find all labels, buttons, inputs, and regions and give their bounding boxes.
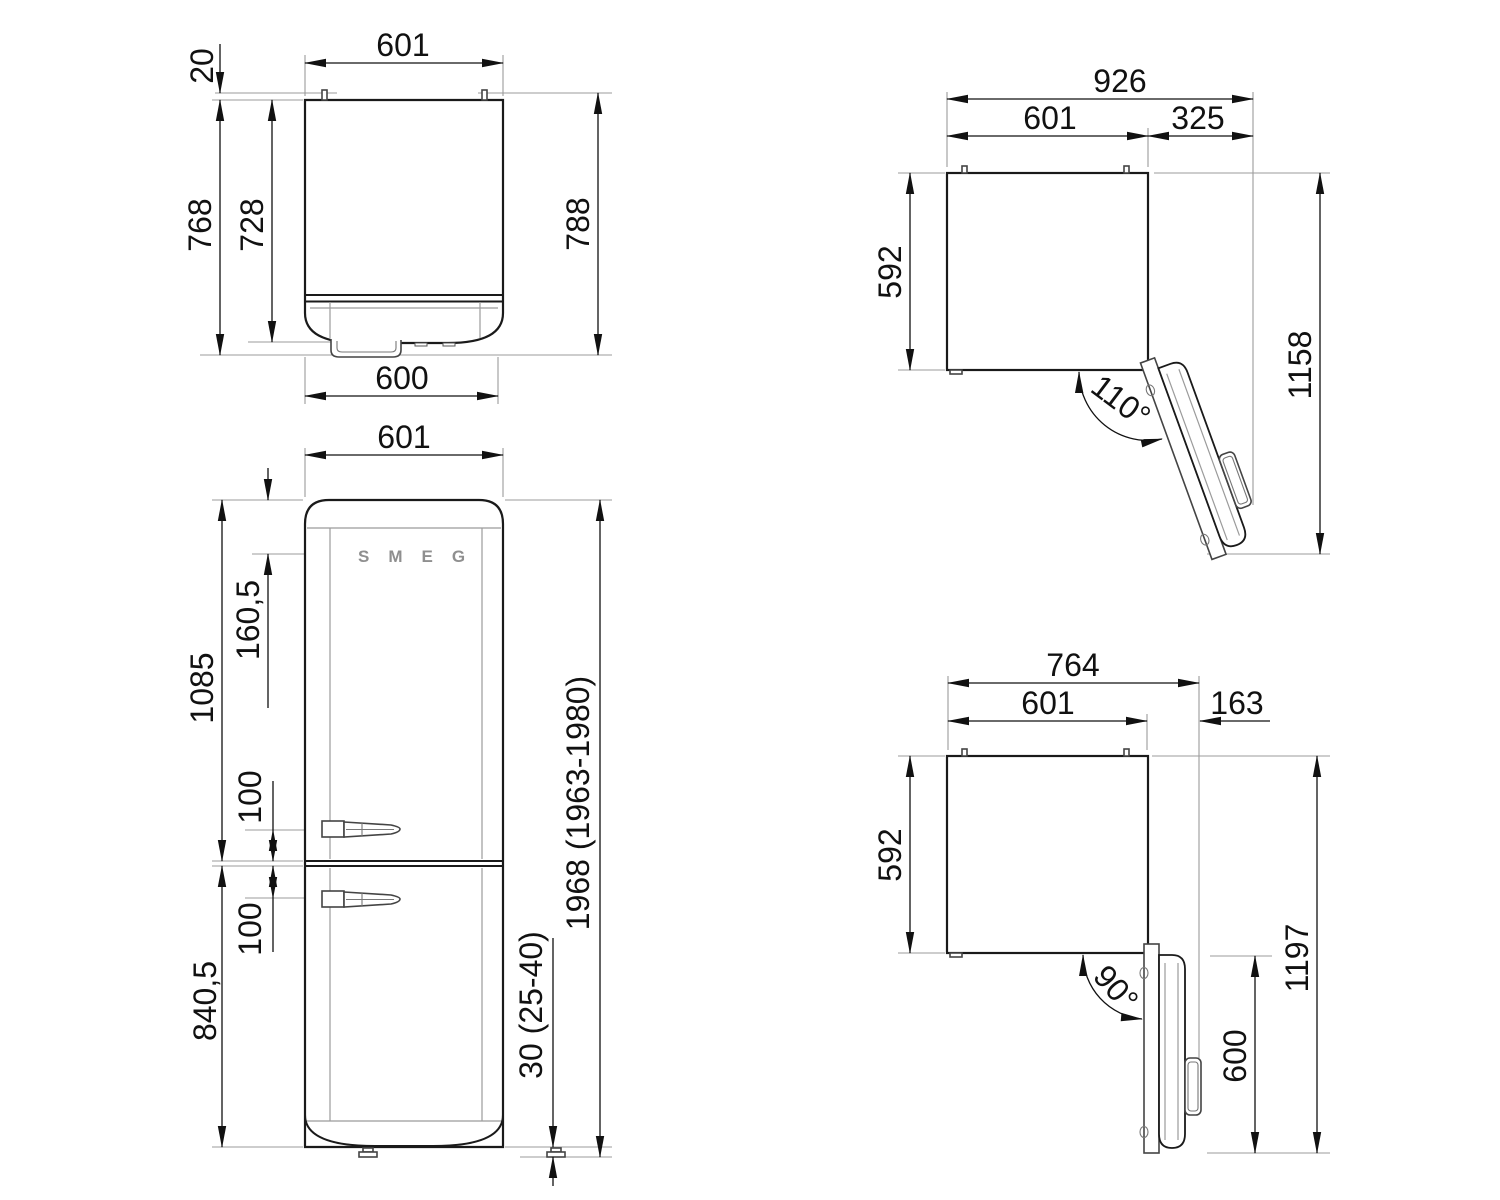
front-view: SMEG 601 160,5 1085 <box>184 419 612 1186</box>
dim-label-90-clearance: 163 <box>1210 685 1263 721</box>
dim-label-90-body-width: 601 <box>1021 685 1074 721</box>
dim-label-total-height: 1968 (1963-1980) <box>560 676 596 930</box>
cabinet-90-outline <box>947 756 1148 953</box>
dim-label-hinge-offset: 20 <box>184 48 220 84</box>
hinge-pin-110-right <box>1124 166 1129 173</box>
dim-label-logo-offset: 160,5 <box>230 580 266 660</box>
handle-top-view <box>331 339 401 357</box>
top-view: 601 20 768 728 788 600 <box>182 27 612 404</box>
hinge-pin-90-right <box>1124 749 1129 756</box>
dim-label-bottom-width: 600 <box>375 360 428 396</box>
hinge-pin-90-left <box>962 749 967 756</box>
door-open-90-view: 90° 764 601 163 592 600 1197 <box>872 647 1330 1153</box>
dim-label-depth-728: 728 <box>234 198 270 251</box>
dim-label-110-depth: 592 <box>872 245 908 298</box>
adjustable-feet <box>359 1148 565 1157</box>
dim-label-90-depth: 592 <box>872 828 908 881</box>
dim-label-front-width: 601 <box>377 419 430 455</box>
dim-label-110-total-depth: 1158 <box>1282 331 1318 400</box>
dim-label-angle-90: 90° <box>1086 958 1145 1018</box>
appliance-dimension-drawing: 601 20 768 728 788 600 <box>0 0 1500 1200</box>
dim-label-110-body-width: 601 <box>1023 100 1076 136</box>
foot-mark-110 <box>950 370 962 374</box>
cabinet-top-outline <box>305 100 503 343</box>
dimension-drawing-canvas: 601 20 768 728 788 600 <box>0 0 1500 1200</box>
hinge-pin-left <box>322 90 327 100</box>
brand-logo: SMEG <box>358 547 484 566</box>
open-door-90 <box>1140 944 1201 1153</box>
door-open-110-view: 110° 926 601 325 592 1158 <box>872 63 1330 561</box>
dim-label-lower-height: 840,5 <box>187 961 223 1041</box>
dim-label-gap-lower: 100 <box>232 902 268 955</box>
dim-label-depth-788: 788 <box>560 197 596 250</box>
foot-mark-90 <box>950 953 962 957</box>
dim-label-90-overall-width: 764 <box>1046 647 1099 683</box>
hinge-pin-110-left <box>962 166 967 173</box>
dim-label-top-width: 601 <box>376 27 429 63</box>
dim-label-90-door-width: 600 <box>1217 1029 1253 1082</box>
dim-label-feet-height: 30 (25-40) <box>513 931 549 1079</box>
dim-label-110-clearance: 325 <box>1171 100 1224 136</box>
dim-label-upper-height: 1085 <box>184 652 220 723</box>
dim-label-110-overall-width: 926 <box>1093 63 1146 99</box>
dim-label-90-total-depth: 1197 <box>1279 924 1315 993</box>
cabinet-110-outline <box>947 173 1148 370</box>
dim-label-depth-768: 768 <box>182 198 218 251</box>
dim-label-gap-upper: 100 <box>232 770 268 823</box>
open-door-110 <box>1137 344 1266 561</box>
hinge-pin-right <box>482 90 487 100</box>
